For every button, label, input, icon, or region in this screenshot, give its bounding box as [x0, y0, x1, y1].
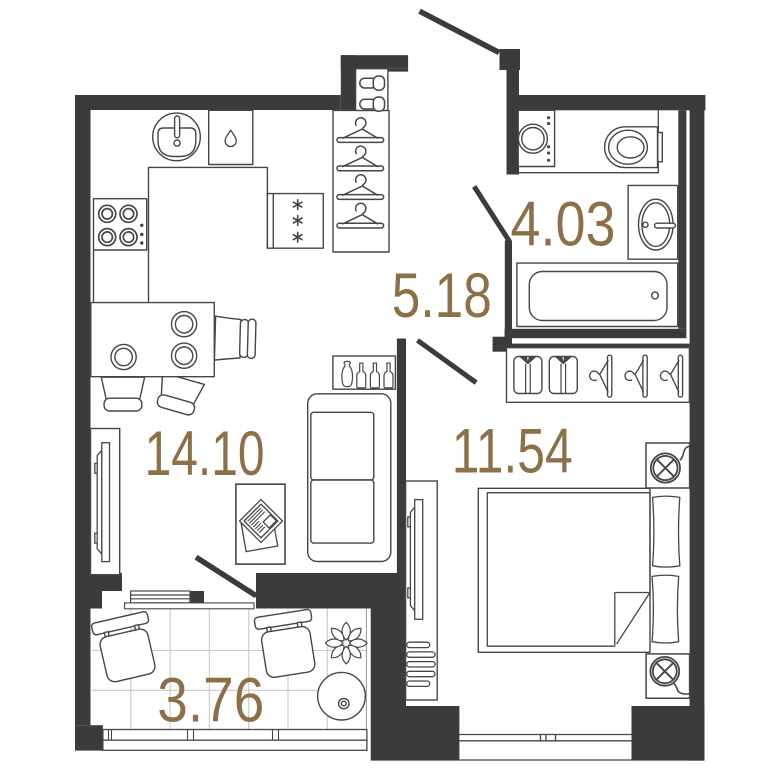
svg-text:11.54: 11.54 [452, 417, 573, 487]
svg-text:14.10: 14.10 [145, 419, 265, 489]
svg-text:3.76: 3.76 [157, 666, 264, 736]
svg-text:4.03: 4.03 [511, 190, 616, 260]
svg-text:5.18: 5.18 [392, 261, 492, 331]
